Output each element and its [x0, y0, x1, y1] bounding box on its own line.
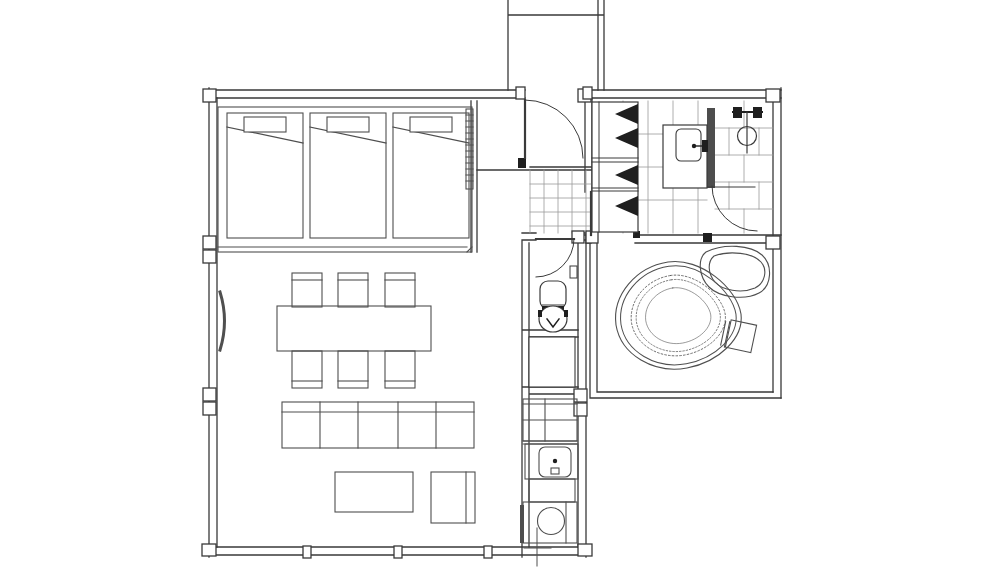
column-left-mid-b: [203, 250, 216, 263]
pillow: [327, 117, 369, 132]
sink-drain-dot: [553, 459, 557, 463]
column-top-right: [766, 89, 780, 102]
column-bottom-2: [394, 546, 402, 558]
column-left-lower-a: [203, 388, 216, 401]
column-bath-corner-b: [574, 403, 587, 416]
paper-background: [0, 0, 1007, 567]
column-bottom-1: [303, 546, 311, 558]
faucet-body: [702, 140, 708, 152]
bowl-side-right: [564, 310, 568, 317]
column-bottom-left: [202, 544, 216, 556]
vanity-counter: [663, 125, 707, 188]
column-right-mid: [766, 236, 780, 249]
entry-door-jamb-right: [583, 87, 592, 99]
vanity-sink: [663, 125, 708, 188]
shoe-cabinet: [592, 102, 638, 232]
entry-door-hinge-block: [518, 158, 526, 168]
column-bath-corner-a: [574, 389, 587, 402]
pillow: [410, 117, 452, 132]
column-top-left: [203, 89, 216, 102]
floor-plan-page: [0, 0, 1007, 567]
column-bottom-right: [578, 544, 592, 556]
bowl-side-left: [538, 310, 542, 317]
drain-dot: [692, 144, 696, 148]
counter-end-panel: [520, 505, 524, 543]
column-left-lower-b: [203, 402, 216, 415]
shower-partition-wall: [707, 108, 715, 188]
bath-wall-post: [703, 233, 712, 242]
column-bottom-3: [484, 546, 492, 558]
column-left-mid-a: [203, 236, 216, 249]
pillow: [244, 117, 286, 132]
floor-plan-canvas: [0, 0, 1007, 567]
storage-closet: [529, 337, 575, 387]
entry-door-jamb-left: [516, 87, 525, 99]
